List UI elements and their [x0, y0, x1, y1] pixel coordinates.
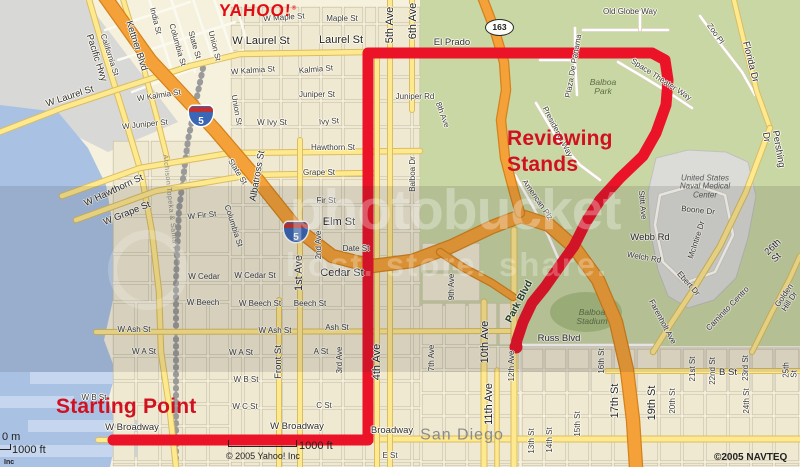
city-block — [161, 463, 183, 466]
reviewing-stands-annotation: Reviewing Stands — [507, 126, 613, 179]
city-block — [545, 441, 566, 461]
city-block — [637, 394, 658, 415]
city-block — [282, 53, 299, 76]
city-block — [545, 349, 566, 369]
city-block — [422, 394, 443, 415]
city-block — [231, 332, 242, 355]
city-block — [301, 179, 320, 204]
city-block — [231, 25, 242, 51]
scale-feet-center-label: 1000 ft — [299, 440, 333, 452]
city-block — [391, 128, 411, 151]
city-block — [391, 309, 411, 330]
city-block — [344, 7, 363, 23]
city-block — [391, 284, 411, 307]
city-block — [522, 441, 543, 461]
city-block — [660, 394, 681, 415]
city-block — [231, 409, 242, 438]
city-block — [209, 382, 229, 403]
city-block — [282, 258, 299, 282]
city-block — [391, 462, 411, 466]
city-block — [591, 394, 612, 415]
city-block — [322, 206, 342, 230]
city-block — [322, 462, 342, 466]
navteq-copyright: ©2005 NAVTEQ — [714, 452, 787, 463]
city-block — [344, 25, 363, 51]
city-block — [706, 371, 727, 392]
city-block — [282, 332, 299, 355]
city-block — [445, 394, 466, 415]
city-block — [391, 409, 411, 438]
city-block — [391, 153, 411, 177]
city-block — [545, 394, 566, 415]
city-block — [231, 462, 242, 466]
city-block — [301, 357, 320, 380]
city-block — [391, 102, 411, 126]
city-block — [322, 7, 342, 23]
city-block — [262, 78, 280, 100]
city-block — [660, 349, 681, 369]
city-block — [322, 25, 342, 51]
city-block — [683, 441, 704, 461]
city-block — [231, 284, 242, 307]
city-block — [422, 441, 443, 461]
scale-bracket-left — [0, 444, 11, 450]
city-block — [282, 284, 299, 307]
starting-point-annotation: Starting Point — [56, 394, 196, 420]
city-block — [282, 409, 299, 438]
city-block — [262, 258, 280, 282]
city-block — [322, 78, 342, 100]
city-block — [344, 128, 363, 151]
city-block — [422, 371, 443, 392]
city-block — [545, 371, 566, 392]
city-block — [244, 309, 260, 330]
major-road — [96, 331, 516, 332]
city-block — [231, 258, 242, 282]
city-block — [322, 284, 342, 307]
route-end-marker — [510, 341, 523, 354]
city-block — [189, 255, 229, 282]
city-block — [344, 332, 363, 355]
city-block — [282, 78, 299, 100]
city-block — [344, 53, 363, 76]
city-block — [344, 409, 363, 438]
scale-meters-label: 0 m — [2, 431, 20, 443]
city-block — [113, 303, 135, 330]
city-block — [209, 357, 229, 380]
city-block — [391, 78, 411, 100]
city-block — [301, 258, 320, 282]
yahoo-logo: YAHOO!® — [218, 1, 297, 21]
pier — [30, 372, 114, 384]
city-block — [244, 462, 260, 466]
city-block — [344, 78, 363, 100]
city-block — [344, 206, 363, 230]
city-block — [591, 371, 612, 392]
city-block — [683, 349, 704, 369]
city-block — [301, 102, 320, 126]
city-block — [683, 371, 704, 392]
city-block — [344, 309, 363, 330]
city-block — [344, 284, 363, 307]
city-block — [209, 303, 229, 330]
city-block — [322, 128, 342, 151]
city-block — [522, 394, 543, 415]
city-block — [775, 349, 799, 369]
city-block — [322, 102, 342, 126]
city-block — [301, 25, 320, 51]
city-block — [231, 179, 242, 204]
city-block — [301, 53, 320, 76]
city-block — [775, 394, 799, 415]
city-block — [244, 78, 260, 100]
city-block — [445, 463, 466, 466]
map-viewport[interactable]: W Maple StMaple StW Laurel StLaurel StW … — [0, 0, 800, 467]
city-block — [113, 217, 149, 253]
city-block — [752, 349, 773, 369]
city-block — [568, 371, 589, 392]
city-block — [282, 102, 299, 126]
city-block — [231, 309, 242, 330]
city-block — [301, 128, 320, 151]
city-block — [185, 463, 207, 466]
city-block — [706, 463, 727, 466]
registered-mark: ® — [291, 5, 297, 11]
city-block — [185, 332, 207, 355]
city-block — [660, 441, 681, 461]
city-block — [137, 303, 159, 330]
city-block — [322, 357, 342, 380]
city-block — [244, 258, 260, 282]
city-block — [244, 206, 260, 230]
city-block — [301, 462, 320, 466]
city-block — [282, 382, 299, 407]
city-block — [322, 332, 342, 355]
city-block — [683, 394, 704, 415]
city-block — [209, 405, 229, 425]
city-block — [113, 255, 149, 282]
city-block — [413, 332, 420, 355]
city-block — [244, 382, 260, 407]
city-block — [189, 217, 229, 253]
city-block — [683, 463, 704, 466]
city-block — [262, 128, 280, 151]
city-block — [706, 394, 727, 415]
city-block — [729, 349, 750, 369]
scale-feet-left-label: 1000 ft — [12, 444, 46, 456]
city-block — [591, 441, 612, 461]
city-block — [161, 303, 183, 330]
city-block — [344, 179, 363, 204]
city-block — [209, 463, 229, 466]
city-block — [322, 382, 342, 407]
city-block — [344, 382, 363, 407]
city-block — [413, 382, 420, 407]
city-block — [301, 7, 320, 23]
city-block — [322, 179, 342, 204]
city-block — [637, 371, 658, 392]
city-block — [244, 284, 260, 307]
city-block — [231, 382, 242, 407]
scale-bracket — [228, 440, 297, 447]
city-block — [365, 25, 376, 51]
city-block — [322, 309, 342, 330]
city-block — [231, 102, 242, 126]
city-block — [282, 128, 299, 151]
city-block — [189, 284, 229, 301]
city-block — [391, 382, 411, 407]
city-block — [185, 303, 207, 330]
city-block — [752, 394, 773, 415]
city-block — [591, 349, 612, 369]
copyright-inc-fragment: Inc — [4, 459, 14, 466]
city-block — [422, 463, 443, 466]
city-block — [301, 409, 320, 438]
city-block — [262, 232, 280, 256]
city-block — [729, 394, 750, 415]
city-block — [660, 371, 681, 392]
city-block — [391, 206, 411, 230]
city-block — [244, 232, 260, 256]
city-block — [113, 332, 135, 355]
city-block — [522, 349, 543, 369]
city-block — [301, 78, 320, 100]
city-block — [422, 273, 450, 301]
city-block — [413, 179, 420, 204]
city-block — [413, 409, 420, 438]
city-block — [752, 463, 773, 466]
city-block — [231, 232, 242, 256]
city-block — [344, 232, 363, 256]
city-block — [391, 332, 411, 355]
city-block — [413, 440, 420, 460]
city-block — [775, 463, 799, 466]
city-block — [262, 102, 280, 126]
city-block — [301, 284, 320, 307]
city-block — [413, 284, 420, 307]
city-block — [445, 303, 466, 330]
city-block — [391, 25, 411, 51]
city-block — [522, 371, 543, 392]
city-block — [445, 371, 466, 392]
city-block — [282, 309, 299, 330]
city-block — [660, 463, 681, 466]
city-block — [301, 332, 320, 355]
city-block — [413, 206, 420, 230]
city-block — [568, 463, 589, 466]
city-block — [344, 357, 363, 380]
city-block — [413, 153, 420, 177]
city-block — [137, 332, 159, 355]
city-block — [209, 332, 229, 355]
city-block — [137, 357, 159, 380]
city-block — [391, 440, 411, 460]
city-block — [545, 463, 566, 466]
city-block — [244, 128, 260, 151]
city-block — [113, 463, 135, 466]
city-block — [113, 357, 135, 380]
city-block — [391, 357, 411, 380]
city-block — [445, 347, 466, 369]
city-block — [729, 371, 750, 392]
city-block — [244, 102, 260, 126]
yahoo-copyright: © 2005 Yahoo! Inc — [226, 451, 300, 461]
city-block — [244, 332, 260, 355]
city-block — [344, 462, 363, 466]
city-block — [322, 409, 342, 438]
city-block — [244, 357, 260, 380]
city-block — [486, 347, 497, 369]
city-block — [365, 7, 376, 23]
city-block — [113, 284, 149, 301]
city-block — [391, 179, 411, 204]
city-block — [244, 409, 260, 438]
city-block — [486, 332, 497, 345]
city-block — [413, 128, 420, 151]
city-block — [391, 7, 411, 23]
city-block — [775, 371, 799, 392]
city-block — [522, 463, 543, 466]
city-block — [231, 206, 242, 230]
city-block — [568, 349, 589, 369]
city-block — [231, 357, 242, 380]
city-block — [282, 462, 299, 466]
city-block — [282, 25, 299, 51]
city-block — [486, 303, 497, 330]
city-block — [391, 232, 411, 256]
city-block — [262, 25, 280, 51]
city-block — [422, 347, 443, 369]
city-block — [344, 102, 363, 126]
city-block — [282, 179, 299, 204]
city-block — [231, 78, 242, 100]
city-block — [568, 394, 589, 415]
city-block — [185, 357, 207, 380]
city-block — [413, 309, 420, 330]
city-block — [729, 463, 750, 466]
city-block — [422, 303, 443, 330]
city-block — [282, 357, 299, 380]
city-block — [591, 463, 612, 466]
city-block — [301, 309, 320, 330]
city-block — [301, 382, 320, 407]
city-block — [445, 441, 466, 461]
city-block — [137, 463, 159, 466]
city-block — [322, 53, 342, 76]
city-block — [568, 441, 589, 461]
city-block — [706, 349, 727, 369]
city-block — [752, 371, 773, 392]
city-block — [413, 357, 420, 380]
city-block — [161, 332, 183, 355]
city-block — [413, 462, 420, 466]
